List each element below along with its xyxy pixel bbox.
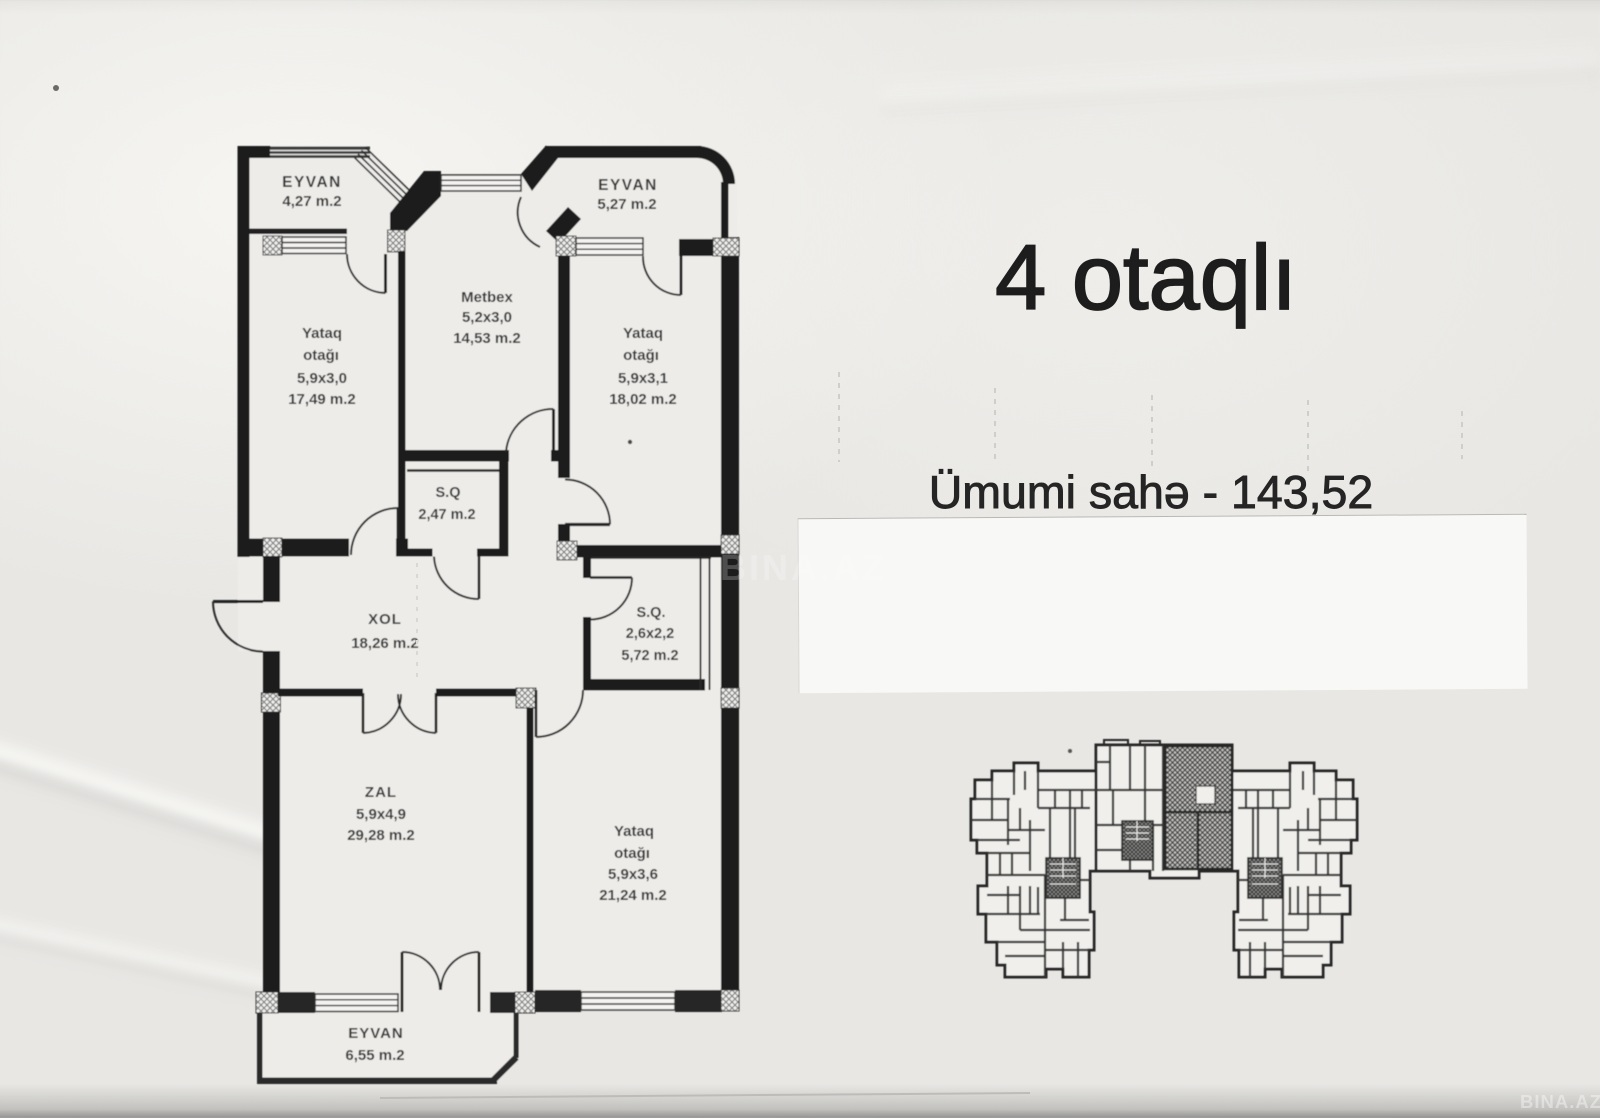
svg-text:5,2x3,0: 5,2x3,0 — [462, 309, 512, 326]
svg-text:5,27 m.2: 5,27 m.2 — [597, 196, 656, 213]
svg-text:Metbex: Metbex — [461, 289, 513, 306]
svg-text:4,27 m.2: 4,27 m.2 — [282, 193, 341, 210]
svg-text:21,24 m.2: 21,24 m.2 — [599, 887, 667, 904]
svg-text:otağı: otağı — [303, 347, 339, 364]
svg-text:2,6x2,2: 2,6x2,2 — [626, 626, 674, 642]
svg-text:29,28 m.2: 29,28 m.2 — [347, 827, 415, 844]
svg-text:EYVAN: EYVAN — [598, 177, 658, 194]
svg-text:5,9x3,6: 5,9x3,6 — [608, 866, 658, 883]
svg-text:18,02 m.2: 18,02 m.2 — [609, 391, 677, 408]
svg-text:14,53 m.2: 14,53 m.2 — [453, 330, 521, 347]
svg-text:BINA.AZ: BINA.AZ — [720, 547, 887, 588]
svg-text:2,47 m.2: 2,47 m.2 — [418, 507, 475, 523]
svg-text:6,55 m.2: 6,55 m.2 — [345, 1047, 404, 1064]
svg-text:18,26 m.2: 18,26 m.2 — [351, 635, 419, 652]
svg-text:S.Q.: S.Q. — [636, 605, 665, 621]
svg-text:BINA.AZ: BINA.AZ — [1520, 1091, 1600, 1112]
svg-text:XOL: XOL — [368, 611, 402, 628]
svg-text:EYVAN: EYVAN — [348, 1025, 404, 1042]
svg-text:Yataq: Yataq — [614, 823, 654, 840]
svg-text:Yataq: Yataq — [302, 325, 342, 342]
svg-text:Ümumi sahə - 143,52: Ümumi sahə - 143,52 — [929, 466, 1374, 518]
svg-text:ZAL: ZAL — [365, 784, 397, 801]
svg-text:otağı: otağı — [623, 347, 659, 364]
svg-text:17,49 m.2: 17,49 m.2 — [288, 391, 356, 408]
svg-text:4 otaqlı: 4 otaqlı — [995, 227, 1297, 329]
svg-text:5,72 m.2: 5,72 m.2 — [621, 648, 678, 664]
svg-text:5,9x3,1: 5,9x3,1 — [618, 370, 668, 387]
svg-text:EYVAN: EYVAN — [282, 174, 342, 191]
svg-text:Yataq: Yataq — [623, 325, 663, 342]
svg-text:S.Q: S.Q — [436, 485, 461, 501]
svg-text:5,9x3,0: 5,9x3,0 — [297, 370, 347, 387]
svg-text:5,9x4,9: 5,9x4,9 — [356, 806, 406, 823]
svg-text:otağı: otağı — [614, 845, 650, 862]
